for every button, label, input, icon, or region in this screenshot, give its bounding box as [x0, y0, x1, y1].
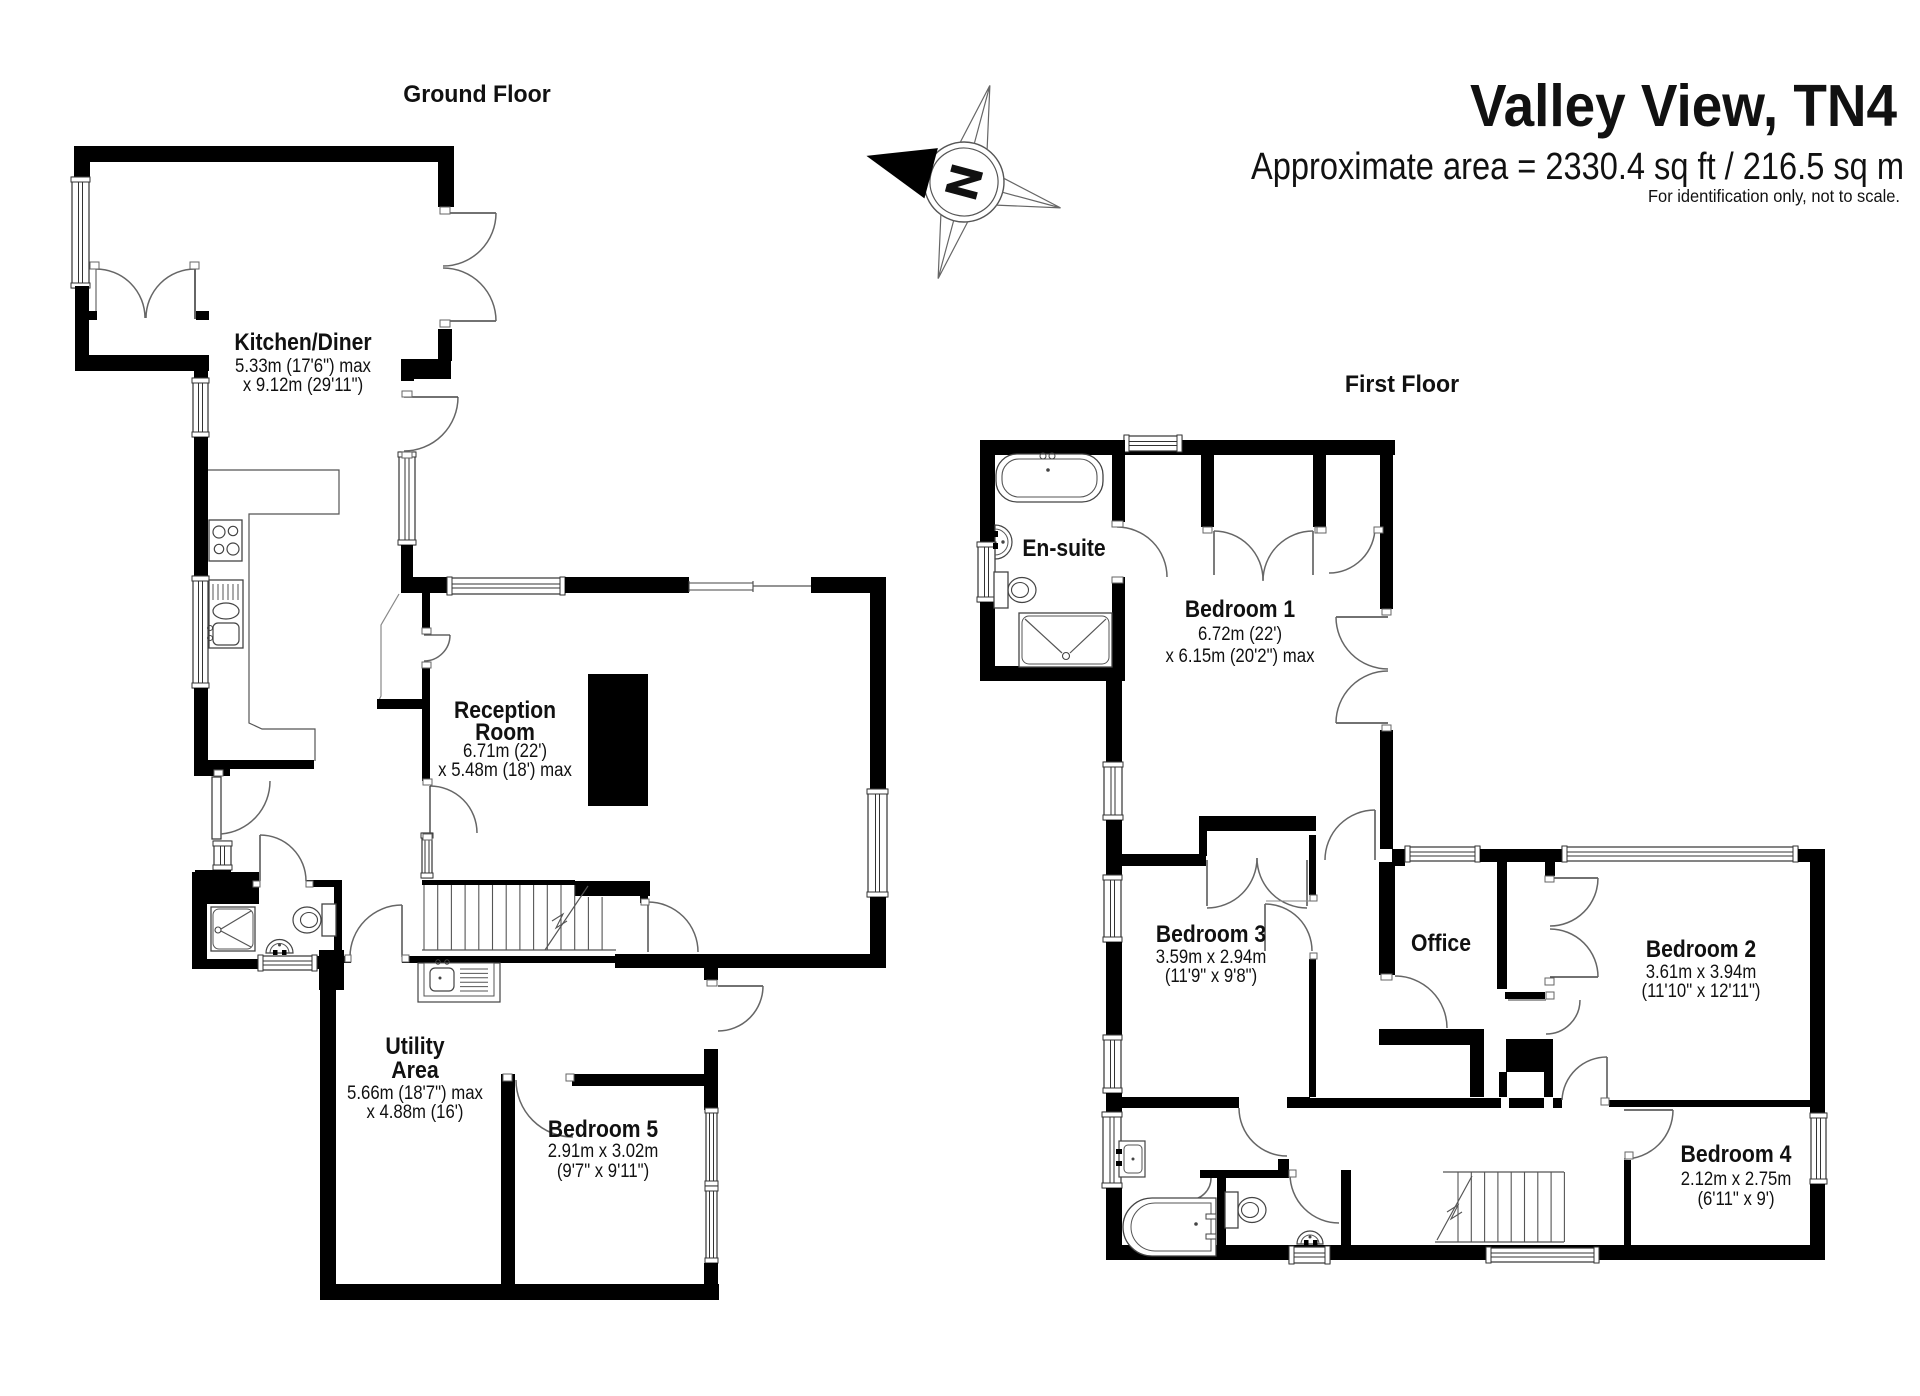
svg-text:(11'9" x 9'8"): (11'9" x 9'8")	[1165, 966, 1257, 987]
svg-text:En-suite: En-suite	[1022, 535, 1105, 562]
svg-text:x 9.12m (29'11"): x 9.12m (29'11")	[243, 375, 363, 396]
svg-text:2.12m x 2.75m: 2.12m x 2.75m	[1681, 1169, 1792, 1190]
svg-text:Kitchen/Diner: Kitchen/Diner	[234, 329, 371, 356]
svg-text:Area: Area	[391, 1057, 439, 1084]
svg-text:(11'10" x 12'11"): (11'10" x 12'11")	[1642, 981, 1761, 1002]
svg-text:2.91m x 3.02m: 2.91m x 3.02m	[548, 1141, 659, 1162]
svg-text:5.66m (18'7") max: 5.66m (18'7") max	[347, 1083, 483, 1104]
svg-text:(6'11" x 9'): (6'11" x 9')	[1697, 1189, 1774, 1210]
svg-text:First Floor: First Floor	[1345, 371, 1460, 398]
svg-text:Bedroom 1: Bedroom 1	[1185, 596, 1295, 623]
svg-text:x 4.88m (16'): x 4.88m (16')	[367, 1102, 464, 1123]
svg-text:Ground Floor: Ground Floor	[403, 81, 551, 108]
svg-text:Bedroom 4: Bedroom 4	[1681, 1141, 1792, 1168]
svg-text:3.59m x 2.94m: 3.59m x 2.94m	[1156, 947, 1267, 968]
svg-text:(9'7" x 9'11"): (9'7" x 9'11")	[557, 1161, 649, 1182]
svg-text:x 6.15m (20'2") max: x 6.15m (20'2") max	[1166, 646, 1315, 667]
svg-text:5.33m (17'6") max: 5.33m (17'6") max	[235, 356, 371, 377]
svg-text:Approximate area = 2330.4 sq f: Approximate area = 2330.4 sq ft / 216.5 …	[1251, 146, 1904, 188]
svg-text:Bedroom 3: Bedroom 3	[1156, 921, 1266, 948]
svg-text:x 5.48m (18') max: x 5.48m (18') max	[438, 760, 572, 781]
svg-text:6.71m (22'): 6.71m (22')	[463, 741, 547, 762]
svg-text:Bedroom 2: Bedroom 2	[1646, 936, 1756, 963]
svg-text:Office: Office	[1411, 930, 1471, 957]
svg-text:Valley View, TN4: Valley View, TN4	[1470, 73, 1897, 139]
svg-text:6.72m (22'): 6.72m (22')	[1198, 624, 1282, 645]
svg-text:For identification only, not t: For identification only, not to scale.	[1648, 186, 1900, 206]
svg-text:Bedroom 5: Bedroom 5	[548, 1116, 658, 1143]
svg-text:Utility: Utility	[385, 1033, 445, 1060]
svg-text:3.61m x 3.94m: 3.61m x 3.94m	[1646, 962, 1757, 983]
